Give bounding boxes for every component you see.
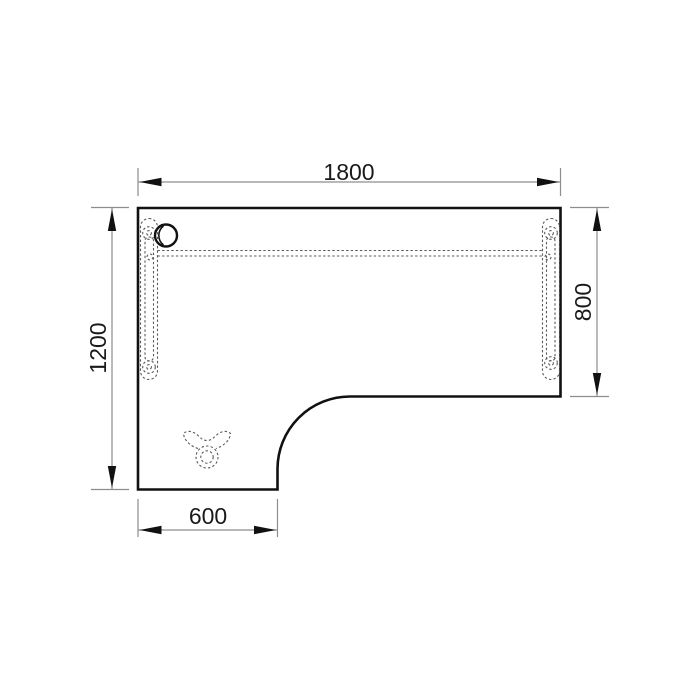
dimension-left-depth: 1200 <box>85 208 129 490</box>
arrowhead-left-icon <box>140 178 162 186</box>
dimension-top-width: 1800 <box>138 159 561 196</box>
desk-top-outline <box>138 208 561 490</box>
technical-drawing-page: 1800 1200 800 600 <box>0 0 700 700</box>
dimension-label-right: 800 <box>570 283 596 321</box>
dimension-label-top: 1800 <box>323 159 374 185</box>
arrowhead-right-icon <box>254 526 276 534</box>
dimension-label-left: 1200 <box>85 322 111 373</box>
arrowhead-up-icon <box>593 209 601 231</box>
dimension-bottom-width: 600 <box>138 499 278 537</box>
arrowhead-down-icon <box>108 466 116 488</box>
dimension-right-depth: 800 <box>570 208 609 397</box>
dimension-label-bottom: 600 <box>189 503 227 529</box>
arrowhead-right-icon <box>537 178 559 186</box>
arrowhead-down-icon <box>593 373 601 395</box>
arrowhead-up-icon <box>108 209 116 231</box>
technical-drawing-canvas: 1800 1200 800 600 <box>0 0 700 700</box>
arrowhead-left-icon <box>140 526 162 534</box>
